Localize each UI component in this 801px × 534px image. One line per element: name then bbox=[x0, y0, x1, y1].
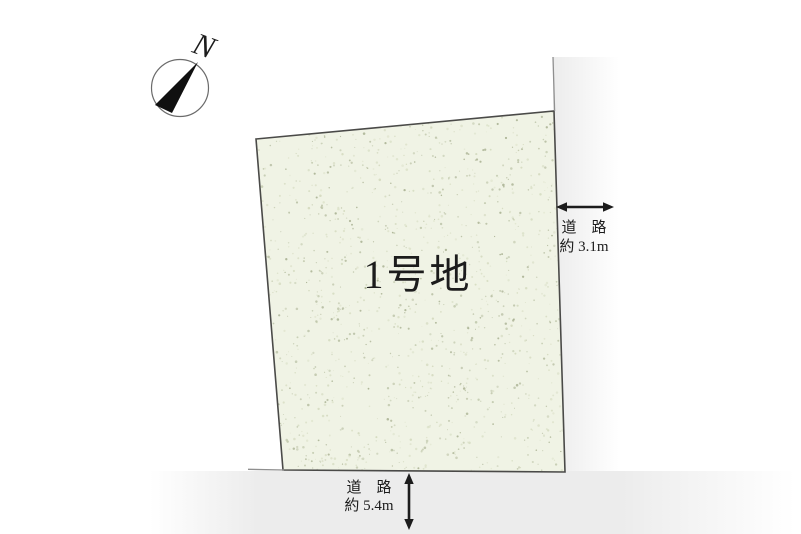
bottom-road-annotation: 道 路 約 5.4m bbox=[314, 480, 424, 515]
bottom-road-name: 道 路 bbox=[314, 480, 424, 498]
right-road-width-arrow bbox=[556, 202, 614, 211]
right-road-annotation: 道 路 約 3.1m bbox=[534, 219, 634, 256]
bottom-road-boundary-line bbox=[248, 469, 284, 470]
compass-icon bbox=[152, 60, 209, 117]
plot-1-label: 1号地 bbox=[308, 251, 528, 299]
right-road-boundary-line bbox=[553, 57, 555, 111]
bottom-road-width: 約 5.4m bbox=[314, 498, 424, 516]
right-road-width: 約 3.1m bbox=[534, 238, 634, 257]
right-road-name: 道 路 bbox=[534, 219, 634, 238]
land-plot-diagram: N 1号地 道 路 約 3.1m 道 路 約 5.4m bbox=[0, 0, 801, 534]
